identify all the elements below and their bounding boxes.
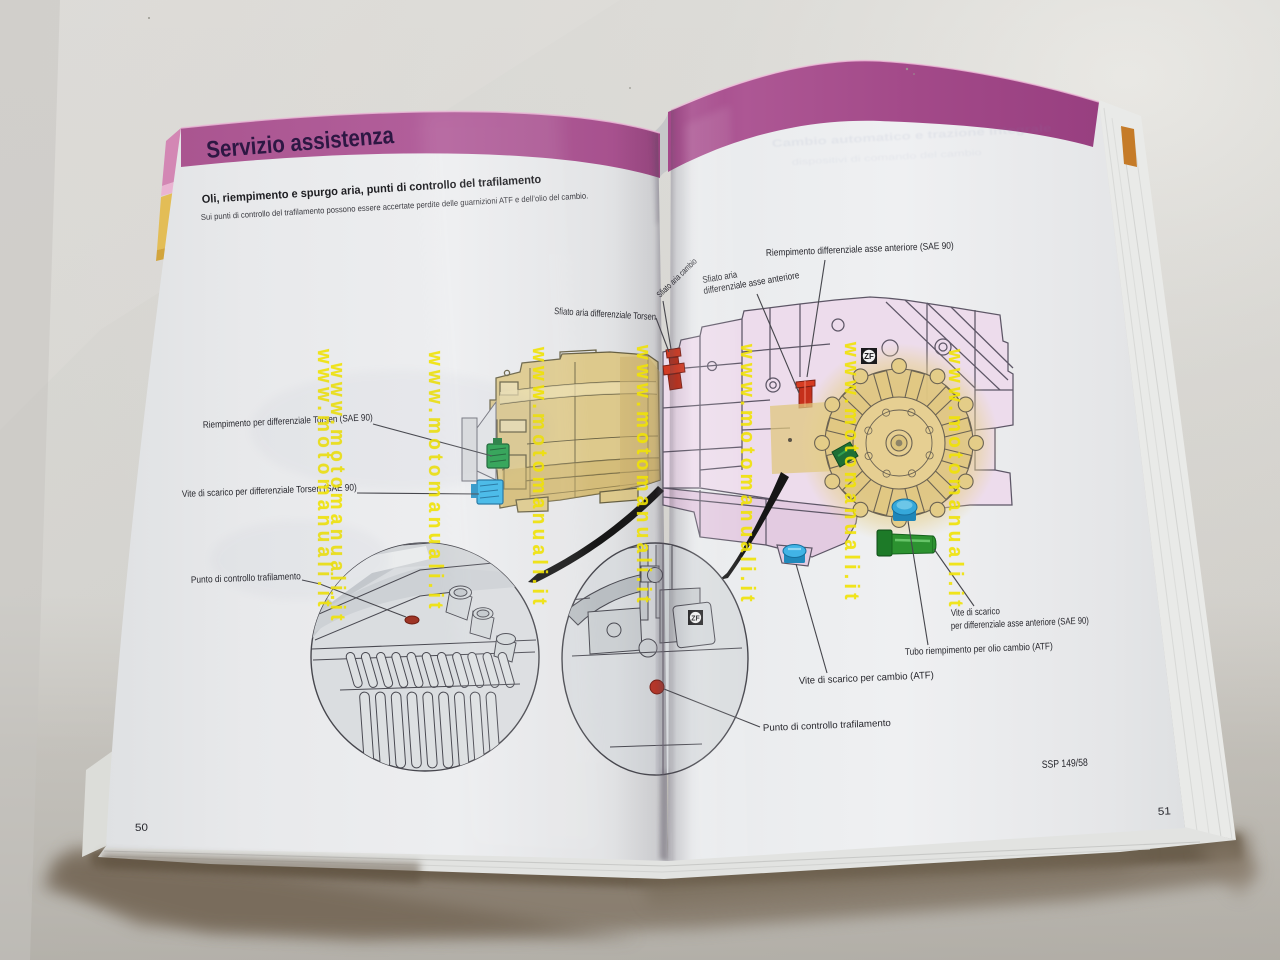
svg-text:SSP 149/58: SSP 149/58 [1042, 757, 1089, 771]
svg-text:www.motomanuali.it: www.motomanuali.it [944, 348, 967, 611]
svg-text:www.motomanuali.it: www.motomanuali.it [736, 343, 759, 606]
svg-text:www.motomanuali.it: www.motomanuali.it [632, 344, 655, 607]
svg-text:51: 51 [1158, 805, 1172, 818]
svg-text:ZF: ZF [864, 352, 874, 361]
svg-text:www.motomanuali.it: www.motomanuali.it [528, 346, 551, 609]
svg-text:50: 50 [135, 822, 148, 834]
svg-text:www.motomanuali.it: www.motomanuali.it [840, 341, 863, 604]
